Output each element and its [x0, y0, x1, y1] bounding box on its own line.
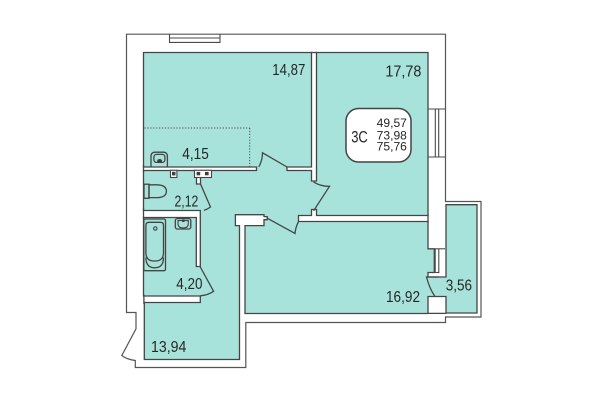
- svg-text:75,76: 75,76: [377, 140, 407, 153]
- svg-text:3,56: 3,56: [446, 277, 472, 294]
- svg-text:2,12: 2,12: [175, 193, 199, 210]
- svg-text:14,87: 14,87: [272, 62, 305, 79]
- svg-text:16,92: 16,92: [386, 289, 420, 306]
- svg-text:4,20: 4,20: [176, 276, 202, 293]
- svg-text:17,78: 17,78: [385, 63, 421, 80]
- svg-text:3C: 3C: [351, 129, 368, 147]
- svg-text:4,15: 4,15: [182, 146, 209, 163]
- svg-text:13,94: 13,94: [151, 339, 186, 356]
- svg-text:49,57: 49,57: [377, 117, 407, 130]
